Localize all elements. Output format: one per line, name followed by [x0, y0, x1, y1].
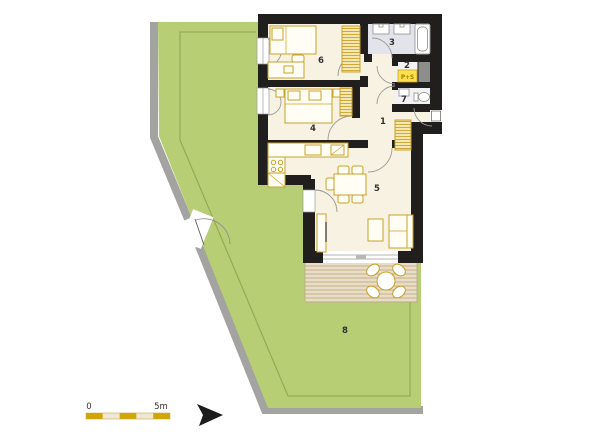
sink-tap — [400, 24, 404, 27]
garden-door-opening — [303, 190, 315, 212]
scale-segment — [86, 413, 103, 419]
room-label-8: 8 — [342, 326, 348, 336]
wall-room6-east — [360, 20, 368, 54]
desk-chair — [292, 55, 304, 62]
burner — [271, 160, 275, 164]
wall-room4-east — [352, 87, 360, 118]
wall-north — [258, 14, 442, 24]
wall-bath-south-right — [392, 54, 442, 62]
bed-pillow — [288, 91, 300, 100]
terrace — [305, 260, 417, 302]
scale-segment — [153, 413, 170, 419]
sliding-door-handle — [356, 255, 366, 259]
terrace-table — [377, 272, 395, 290]
dining-chair — [338, 166, 349, 174]
kitchen-sink — [305, 145, 321, 155]
desk-monitor — [284, 66, 293, 73]
room-label-6: 6 — [318, 56, 324, 66]
toilet-bowl — [419, 93, 430, 102]
scale-segment — [136, 413, 153, 419]
room-label-1: 1 — [380, 117, 386, 127]
entrance-door-panel — [432, 111, 441, 121]
wall-room6-east-stub — [360, 76, 368, 87]
bed-pillow — [309, 91, 321, 100]
scale-start-label: 0 — [86, 402, 91, 412]
dining-chair — [352, 195, 363, 203]
ps-badge-label: P+S — [401, 75, 414, 81]
scale-segment — [120, 413, 137, 419]
burner — [278, 160, 282, 164]
bed-pillow — [272, 28, 283, 40]
coffee-table — [368, 219, 383, 241]
sink-tap — [379, 24, 383, 27]
scale-end-label: 5m — [154, 402, 168, 412]
wall-room6-room4 — [264, 80, 368, 87]
dining-chair — [338, 195, 349, 203]
room-label-7: 7 — [401, 95, 407, 105]
wall-hall-living-left — [360, 140, 368, 148]
burner — [271, 167, 275, 171]
dining-chair — [326, 178, 334, 190]
sofa-back — [407, 215, 413, 248]
room-label-2: 2 — [404, 61, 410, 71]
burner — [278, 167, 282, 171]
dining-chair — [352, 166, 363, 174]
room-label-3: 3 — [389, 38, 395, 48]
floor-plan-page: P+S 1 2 3 4 5 6 7 8 0 5m — [0, 0, 600, 443]
scale-segment — [103, 413, 120, 419]
hall-wardrobe — [395, 120, 411, 150]
bathtub-inner — [418, 27, 428, 51]
floor-plan-svg: P+S 1 2 3 4 5 6 7 8 0 5m — [0, 0, 600, 443]
wall-bath-south-left — [364, 54, 372, 62]
wall-utility-south — [396, 82, 442, 88]
room-label-5: 5 — [374, 184, 380, 194]
wardrobe — [342, 26, 360, 72]
wall-utility-west-a — [392, 62, 398, 66]
wardrobe — [340, 88, 352, 116]
room1-furniture — [395, 120, 411, 150]
wall-east-step — [411, 122, 442, 134]
dining-table — [334, 174, 366, 195]
room-label-4: 4 — [310, 124, 316, 134]
tv-bench — [317, 214, 326, 252]
wall-south-left — [303, 251, 323, 263]
room2-contents: P+S — [398, 70, 417, 82]
toilet-tank — [414, 93, 418, 101]
nightstand — [276, 89, 284, 97]
